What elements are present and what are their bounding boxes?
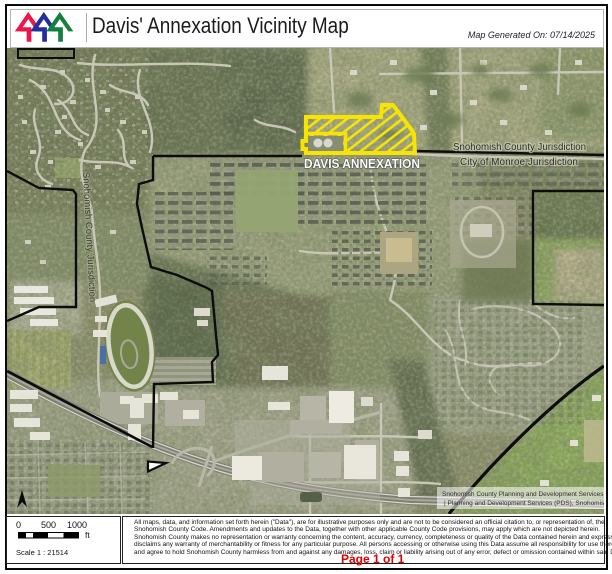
svg-text:Snohomish County Planning and: Snohomish County Planning and Developmen… — [442, 491, 604, 498]
svg-text:DAVIS ANNEXATION: DAVIS ANNEXATION — [304, 156, 420, 171]
svg-text:City of Monroe Jurisdiction: City of Monroe Jurisdiction — [460, 157, 578, 168]
svg-text:Snohomish County Jurisdiction: Snohomish County Jurisdiction — [453, 142, 586, 153]
svg-text:| Planning and Development Ser: | Planning and Development Services (PDS… — [444, 500, 604, 507]
